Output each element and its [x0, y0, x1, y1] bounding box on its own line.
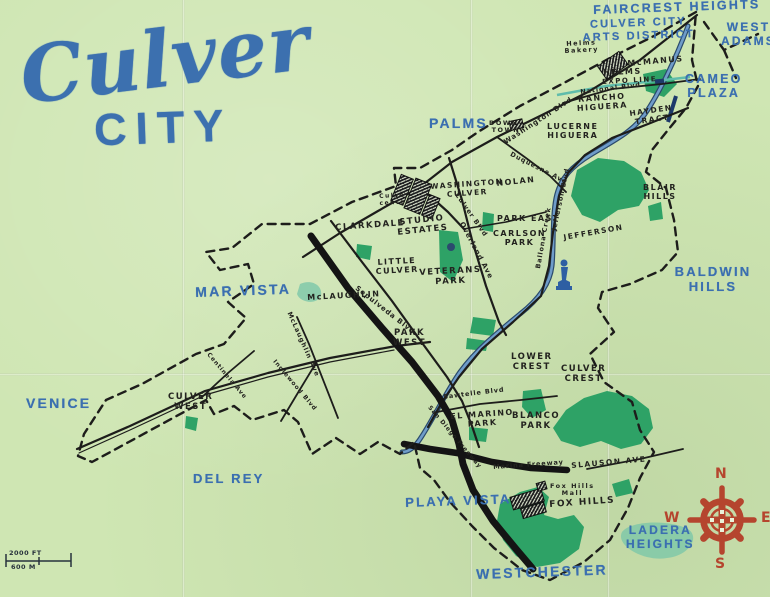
park-carlson [482, 212, 494, 232]
road-duquesne-ave [497, 137, 566, 192]
map-title-caps: CITY [93, 100, 233, 157]
freeway-90-marina [404, 444, 567, 470]
compass-west-label: W [664, 510, 679, 526]
road-washington-blvd [303, 15, 697, 257]
park-el-marino-green [469, 427, 488, 442]
compass-east-label: E [761, 510, 770, 526]
compass-north-label: N [715, 466, 727, 482]
compass-south-label: S [715, 556, 725, 572]
road-mclaughlin-ave [297, 317, 338, 418]
statue-icon [556, 260, 572, 291]
helms-bakery-building-icon [598, 51, 628, 79]
scale-feet-label: 2000 FT [9, 549, 42, 557]
culver-center-building-icon [390, 173, 444, 220]
park-culver-crest-green [553, 391, 653, 449]
scale-meters-label: 600 M [11, 563, 36, 571]
media-park-pond [447, 243, 455, 251]
culver-city-hand-drawn-map: FAIRCREST HEIGHTSWEST ADAMSCULVER CITY A… [0, 0, 770, 597]
road-jefferson-blvd [428, 108, 688, 427]
road-centinela-ave [201, 351, 254, 398]
road-culver-blvd-west [77, 342, 430, 449]
park-blair-hills-green [571, 158, 649, 222]
park-blanco-green [522, 389, 546, 418]
road-slauson-ave [587, 449, 683, 469]
compass-rose-icon [690, 488, 754, 552]
park-media [439, 230, 463, 282]
downtown-building-icon [509, 119, 524, 131]
